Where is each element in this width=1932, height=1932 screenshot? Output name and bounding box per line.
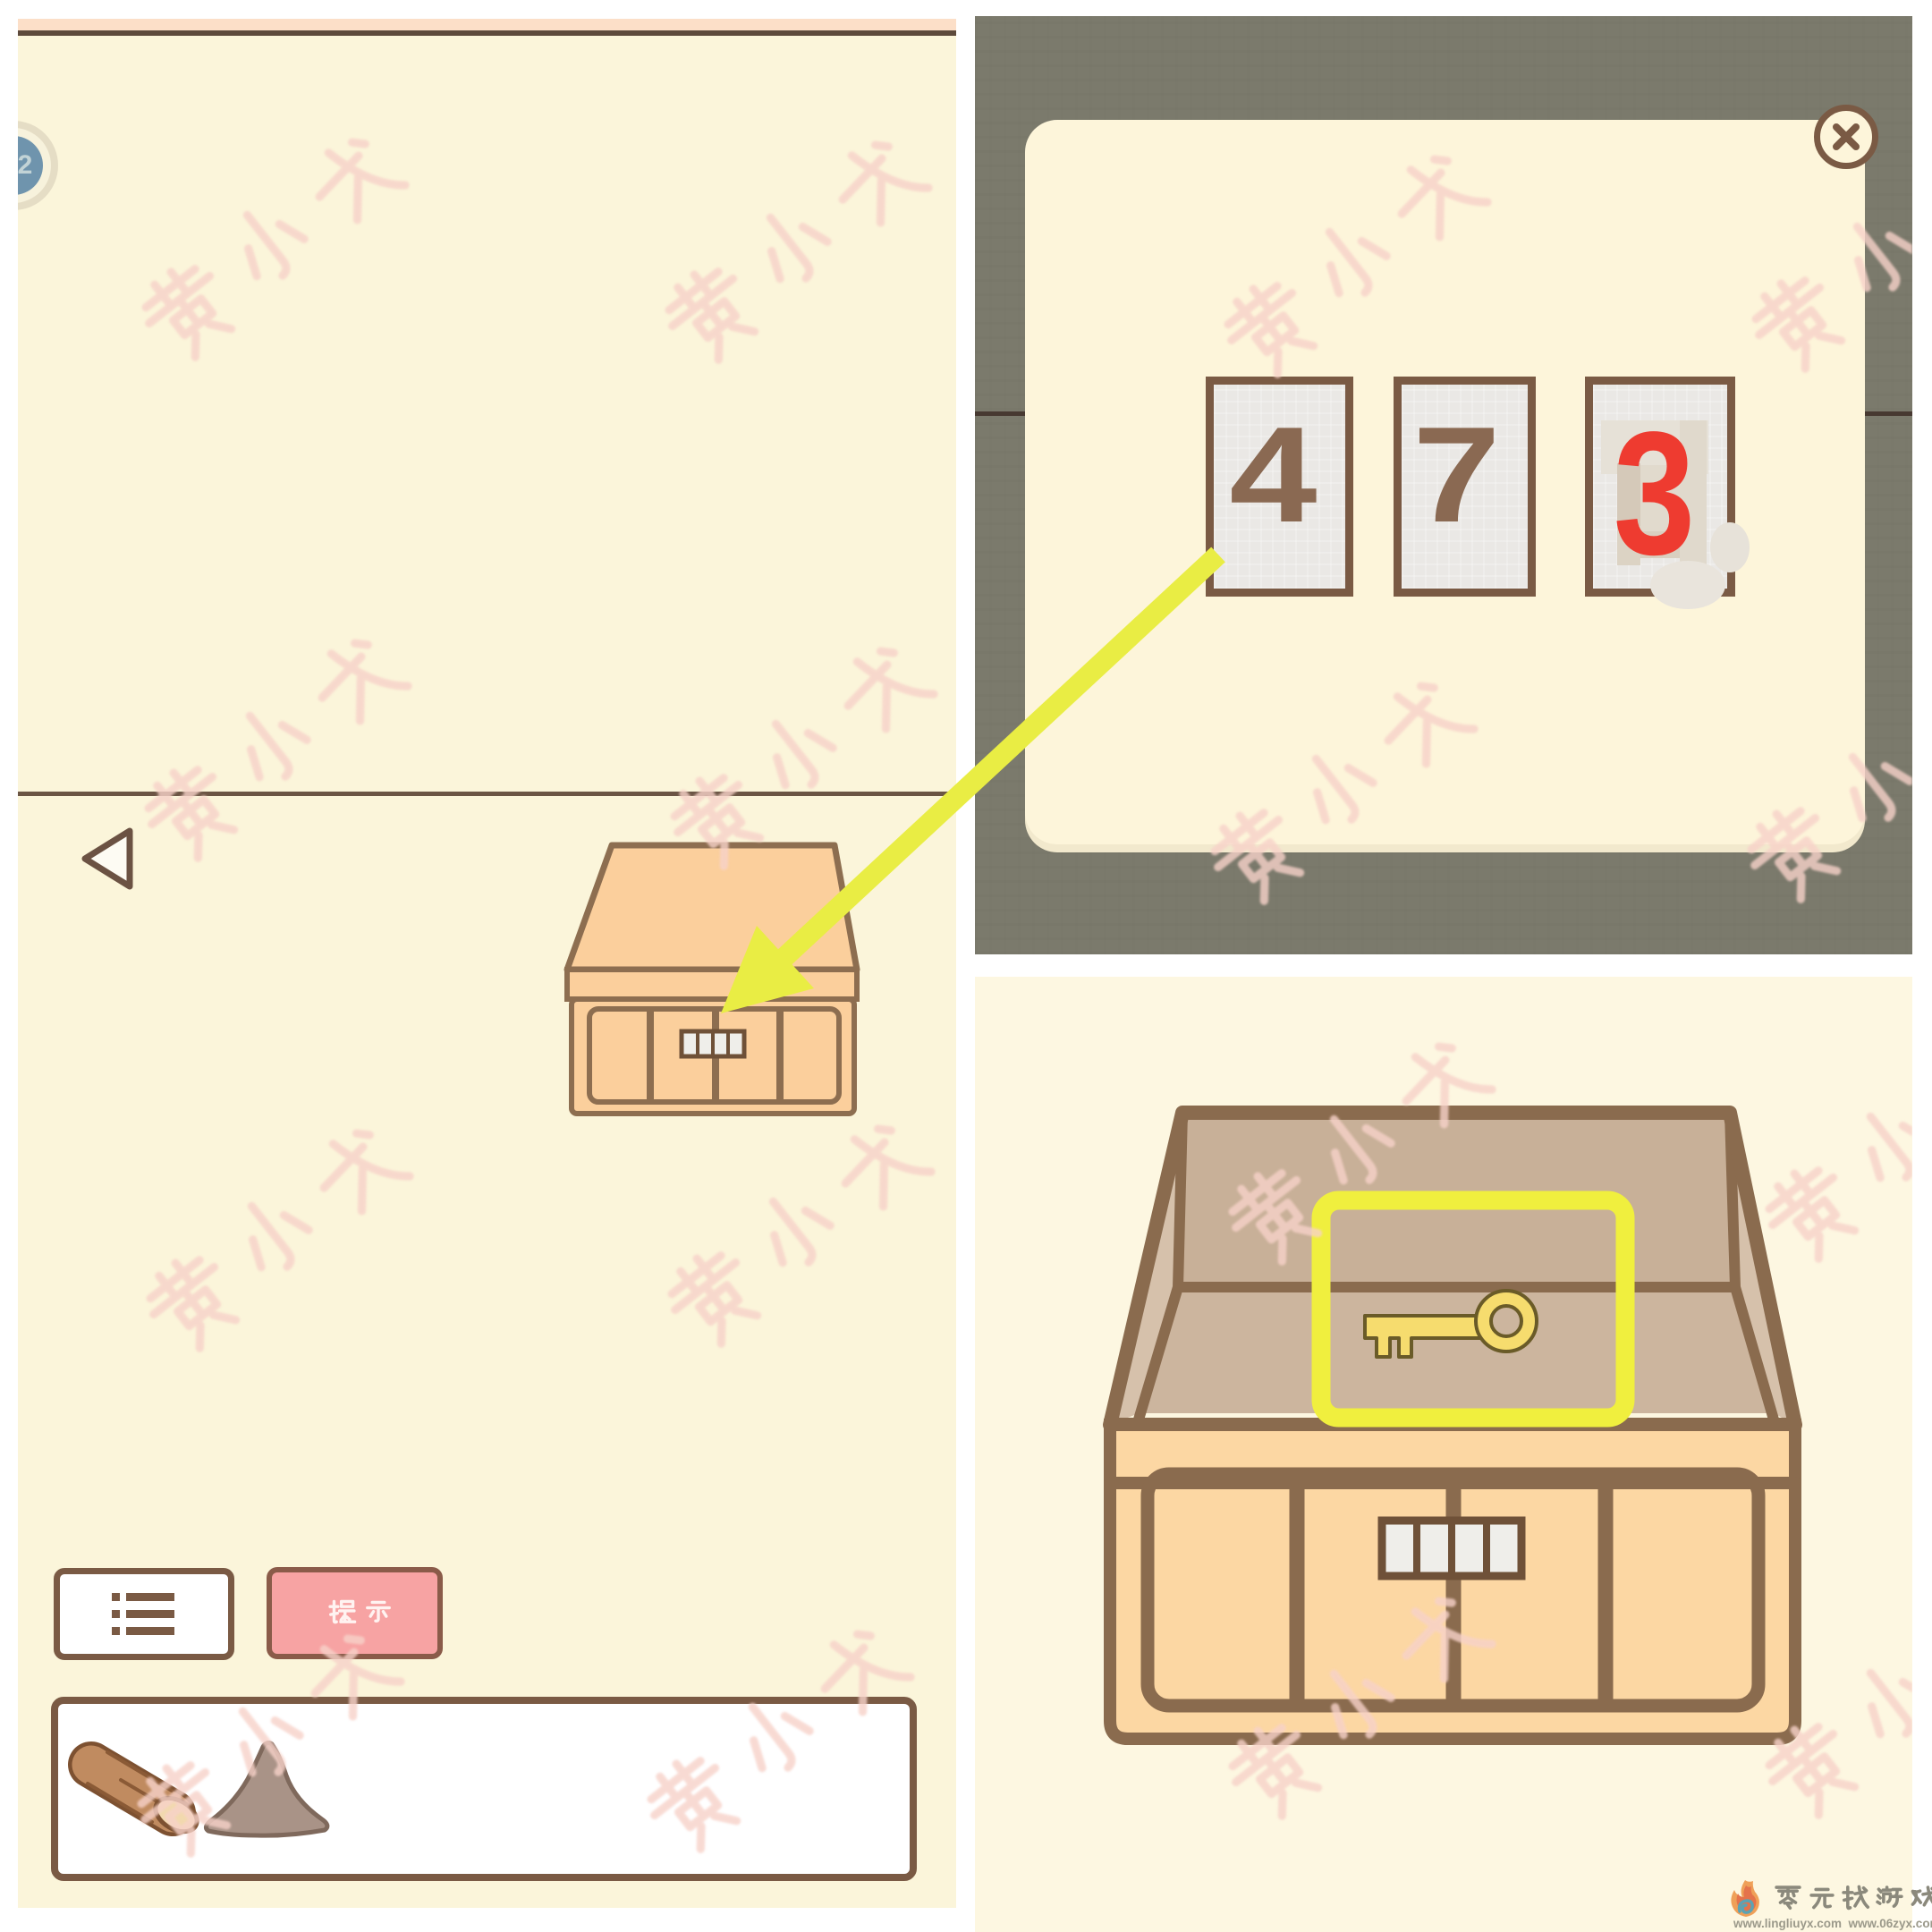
svg-text:www.lingliuyx.com www.06zyx.c: www.lingliuyx.com www.06zyx.com [1733, 1917, 1932, 1930]
